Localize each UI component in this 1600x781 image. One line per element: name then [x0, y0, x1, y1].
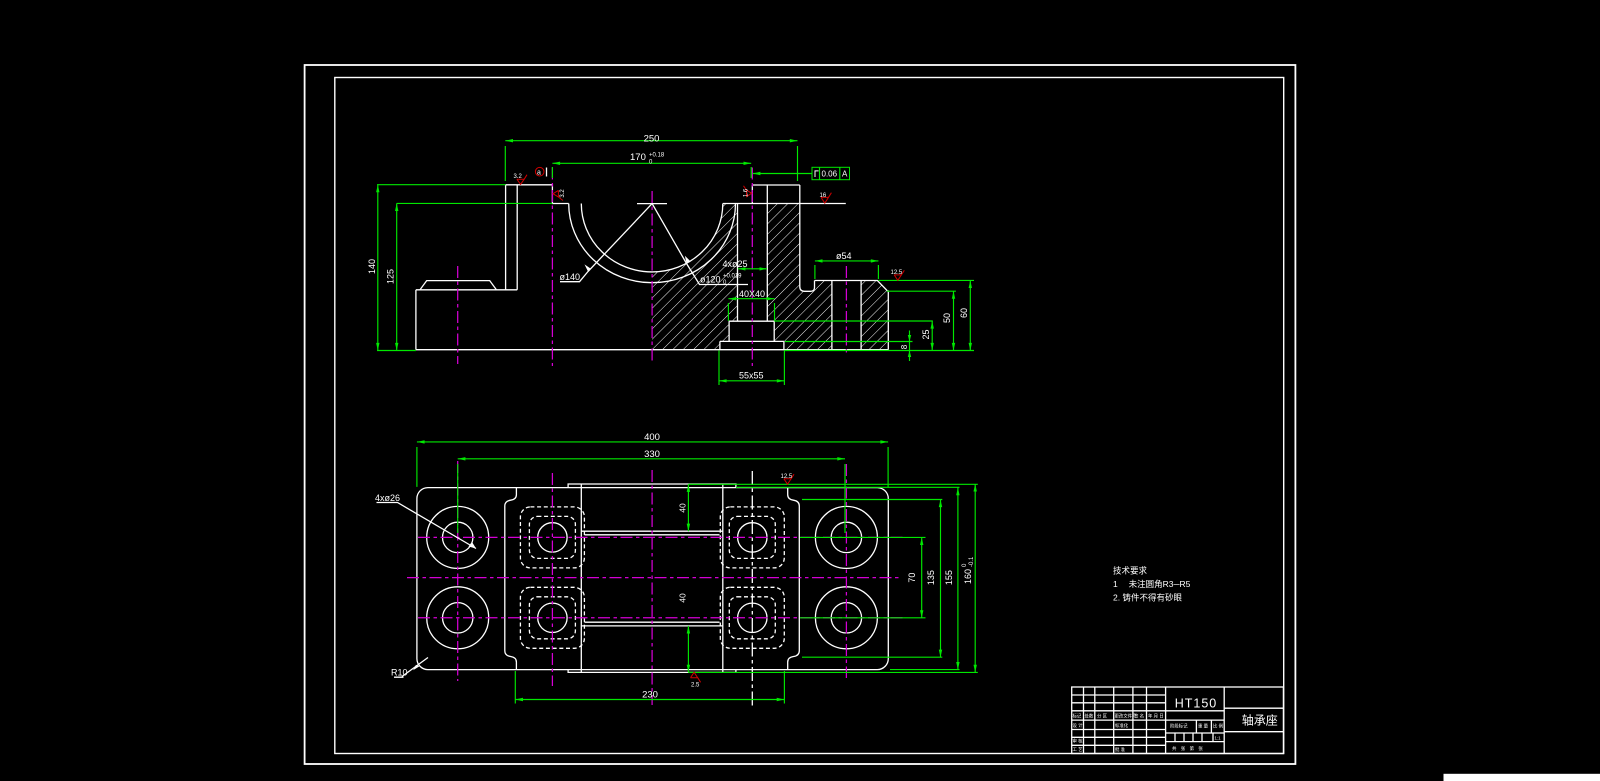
svg-text:标记: 标记 [1073, 713, 1082, 720]
svg-text:40X40: 40X40 [739, 289, 765, 299]
svg-text:3.2: 3.2 [560, 189, 566, 198]
svg-text:4xø25: 4xø25 [723, 259, 748, 269]
svg-text:年 月 日: 年 月 日 [1148, 713, 1164, 720]
svg-text:技术要求: 技术要求 [1113, 566, 1148, 576]
svg-text:共 张 第 张: 共 张 第 张 [1172, 745, 1203, 752]
svg-text:40: 40 [677, 503, 687, 513]
svg-text:155: 155 [944, 570, 954, 585]
svg-text:50: 50 [942, 313, 952, 323]
svg-text:批 准: 批 准 [1115, 746, 1126, 753]
svg-text:审 核: 审 核 [1073, 738, 1084, 745]
svg-text:25: 25 [921, 329, 931, 339]
svg-text:设 计: 设 计 [1073, 722, 1084, 729]
svg-text:a: a [537, 170, 541, 177]
svg-text:比 例: 比 例 [1213, 723, 1224, 730]
svg-text:处数: 处数 [1085, 713, 1094, 720]
svg-text:重 量: 重 量 [1198, 723, 1209, 730]
svg-text:70: 70 [907, 573, 917, 583]
svg-text:330: 330 [644, 449, 660, 460]
svg-text:2. 铸件不得有砂眼: 2. 铸件不得有砂眼 [1113, 593, 1182, 603]
svg-text:60: 60 [959, 308, 969, 318]
svg-text:8: 8 [900, 344, 909, 349]
svg-text:ø54: ø54 [836, 251, 852, 261]
svg-text:125: 125 [386, 269, 396, 284]
svg-text:分 区: 分 区 [1097, 713, 1108, 720]
svg-text:A: A [842, 170, 848, 179]
svg-text:1 未注圆角R3─R5: 1 未注圆角R3─R5 [1113, 579, 1191, 589]
svg-text:1:1: 1:1 [1215, 736, 1222, 741]
svg-text:+0.019: +0.019 [723, 274, 742, 280]
svg-text:HT150: HT150 [1175, 697, 1218, 711]
svg-text:R10: R10 [391, 668, 408, 678]
svg-text:轴承座: 轴承座 [1242, 713, 1278, 728]
svg-text:160: 160 [963, 569, 973, 584]
svg-text:2.5: 2.5 [691, 683, 700, 689]
svg-text:40: 40 [677, 593, 687, 603]
svg-text:-0.1: -0.1 [969, 556, 975, 567]
svg-text:ø140: ø140 [560, 272, 581, 282]
svg-text:16: 16 [820, 193, 827, 199]
svg-text:标准化: 标准化 [1115, 722, 1129, 729]
svg-text:ø120: ø120 [700, 275, 721, 285]
svg-text:阶段标记: 阶段标记 [1170, 723, 1188, 730]
svg-text:12.5: 12.5 [891, 270, 903, 276]
svg-text:12.5: 12.5 [781, 474, 793, 480]
svg-text:4xø26: 4xø26 [375, 493, 400, 503]
svg-text:工 艺: 工 艺 [1073, 747, 1084, 752]
svg-text:230: 230 [642, 690, 658, 701]
svg-text:135: 135 [926, 570, 936, 585]
svg-text:140: 140 [367, 259, 377, 274]
svg-text:250: 250 [644, 134, 660, 145]
svg-text:签 名: 签 名 [1134, 713, 1144, 720]
svg-text:+0.18: +0.18 [649, 153, 665, 159]
svg-text:0.06: 0.06 [822, 170, 838, 179]
svg-text:170: 170 [630, 152, 646, 163]
svg-text:55x55: 55x55 [739, 371, 764, 381]
svg-text:1.6: 1.6 [744, 188, 750, 197]
svg-text:400: 400 [644, 432, 660, 443]
svg-text:3.2: 3.2 [514, 174, 523, 180]
